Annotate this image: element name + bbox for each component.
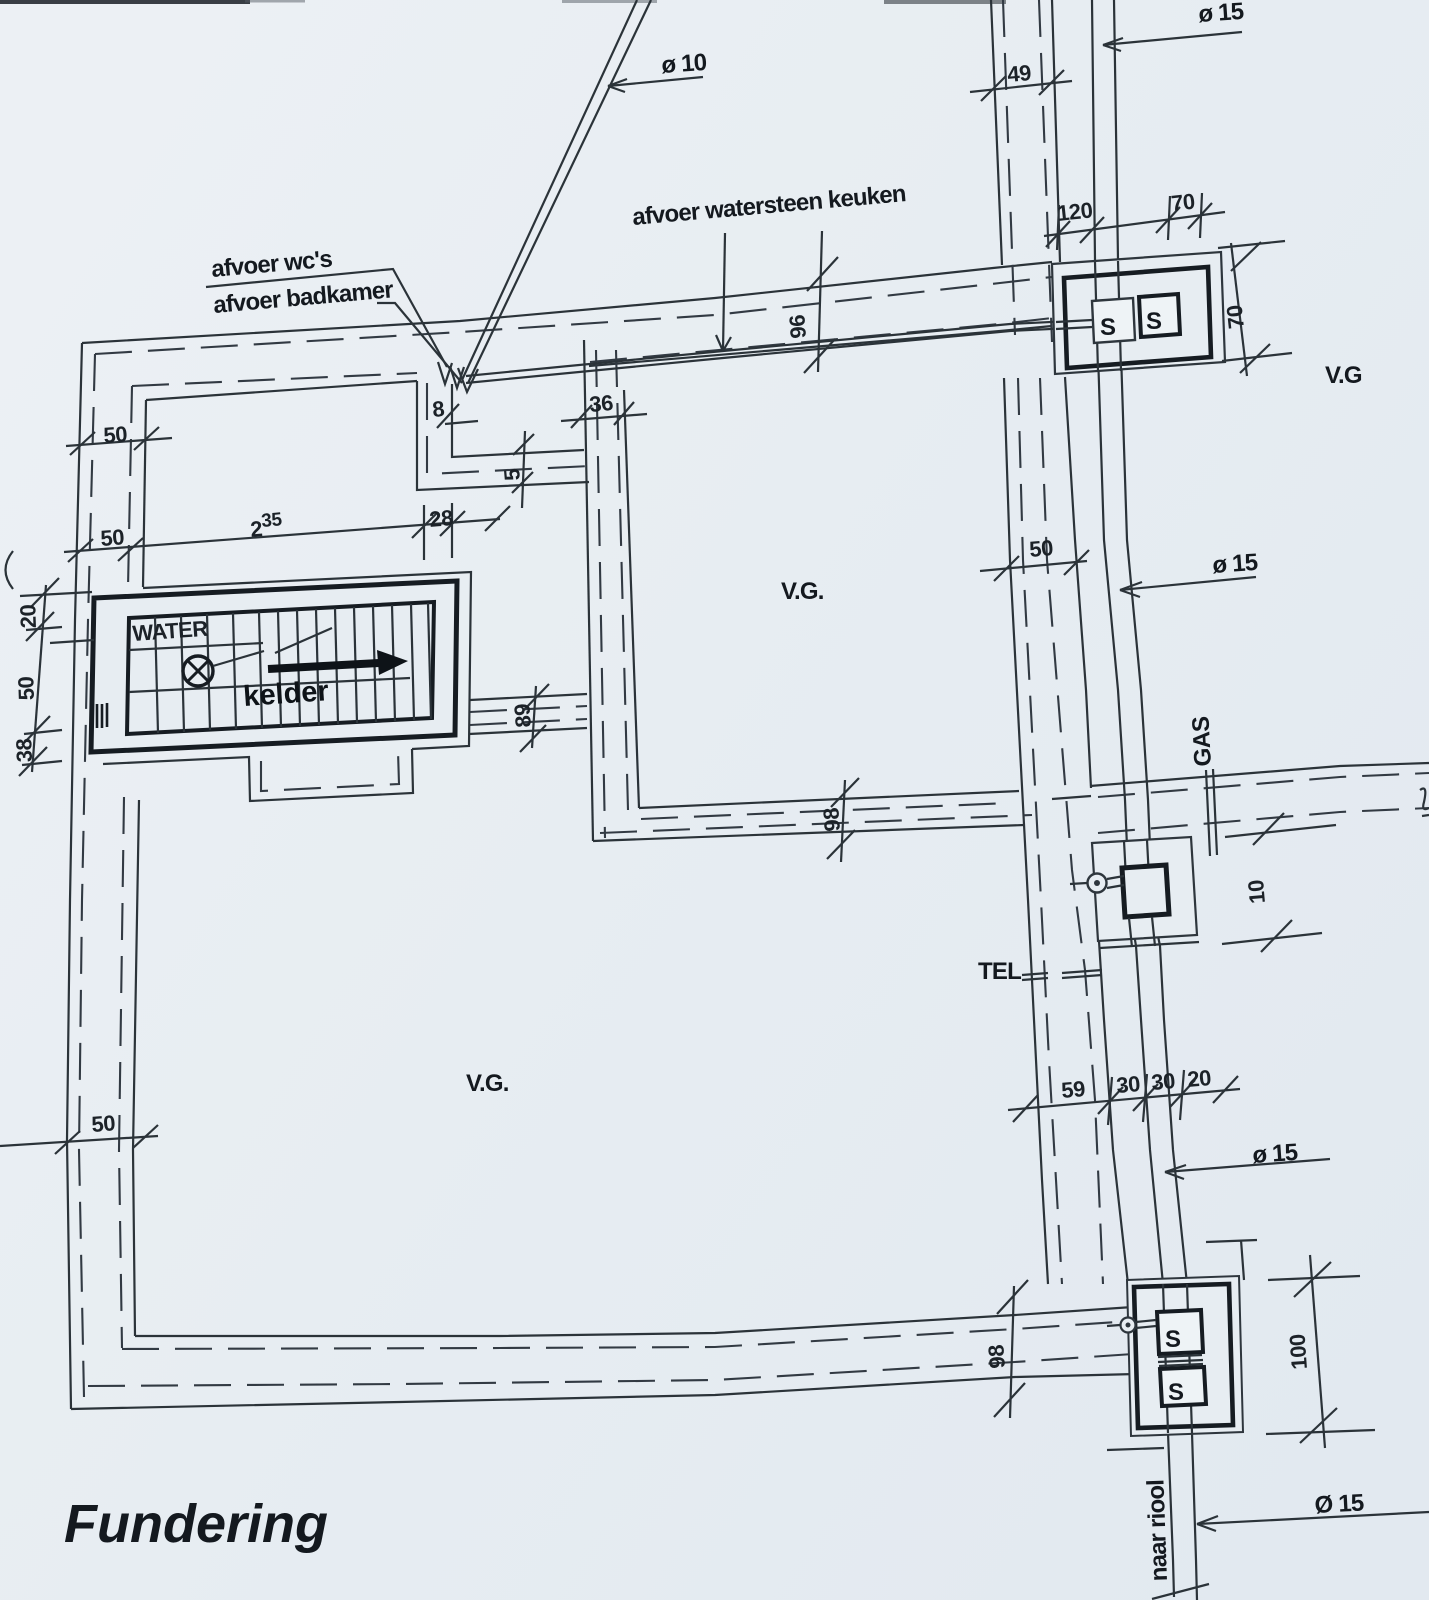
svg-text:GAS: GAS: [1187, 715, 1217, 767]
svg-text:S: S: [1146, 308, 1162, 335]
svg-text:8: 8: [431, 396, 445, 422]
svg-text:50: 50: [91, 1110, 116, 1137]
svg-text:59: 59: [1060, 1076, 1086, 1103]
svg-text:ø 15: ø 15: [1252, 1139, 1299, 1169]
svg-text:50: 50: [100, 524, 125, 551]
svg-text:120: 120: [1056, 197, 1094, 226]
svg-text:98: 98: [983, 1344, 1010, 1369]
svg-text:S: S: [1168, 1379, 1184, 1406]
svg-text:20: 20: [1186, 1065, 1212, 1092]
svg-text:38: 38: [11, 738, 37, 763]
svg-text:28: 28: [428, 505, 454, 532]
svg-text:50: 50: [13, 676, 39, 701]
svg-text:S: S: [1100, 314, 1116, 341]
svg-text:ø 15: ø 15: [1212, 549, 1259, 579]
svg-text:98: 98: [818, 807, 845, 832]
svg-text:V.G.: V.G.: [466, 1070, 509, 1097]
svg-text:30: 30: [1150, 1068, 1176, 1095]
svg-text:70: 70: [1170, 189, 1196, 216]
svg-text:50: 50: [1028, 535, 1054, 562]
svg-text:V.G.: V.G.: [781, 578, 824, 605]
svg-text:30: 30: [1115, 1071, 1141, 1098]
svg-text:V.G: V.G: [1325, 362, 1362, 389]
svg-text:100: 100: [1285, 1333, 1312, 1370]
svg-text:TEL: TEL: [978, 958, 1021, 985]
svg-text:5: 5: [499, 468, 525, 482]
svg-text:Fundering: Fundering: [64, 1494, 328, 1554]
svg-text:49: 49: [1006, 60, 1032, 87]
svg-text:50: 50: [103, 421, 128, 448]
svg-text:ø 10: ø 10: [661, 49, 708, 79]
svg-text:10: 10: [1243, 879, 1270, 905]
svg-text:20: 20: [15, 604, 41, 629]
svg-text:70: 70: [1222, 304, 1249, 330]
svg-text:89: 89: [509, 703, 536, 728]
svg-text:ø 15: ø 15: [1198, 0, 1245, 28]
svg-text:WATER: WATER: [132, 616, 209, 646]
svg-text:96: 96: [784, 314, 811, 339]
svg-text:S: S: [1165, 1326, 1181, 1353]
svg-text:Ø 15: Ø 15: [1314, 1489, 1365, 1519]
svg-text:36: 36: [588, 390, 614, 417]
svg-text:kelder: kelder: [242, 675, 329, 713]
svg-text:naar riool: naar riool: [1142, 1479, 1173, 1581]
